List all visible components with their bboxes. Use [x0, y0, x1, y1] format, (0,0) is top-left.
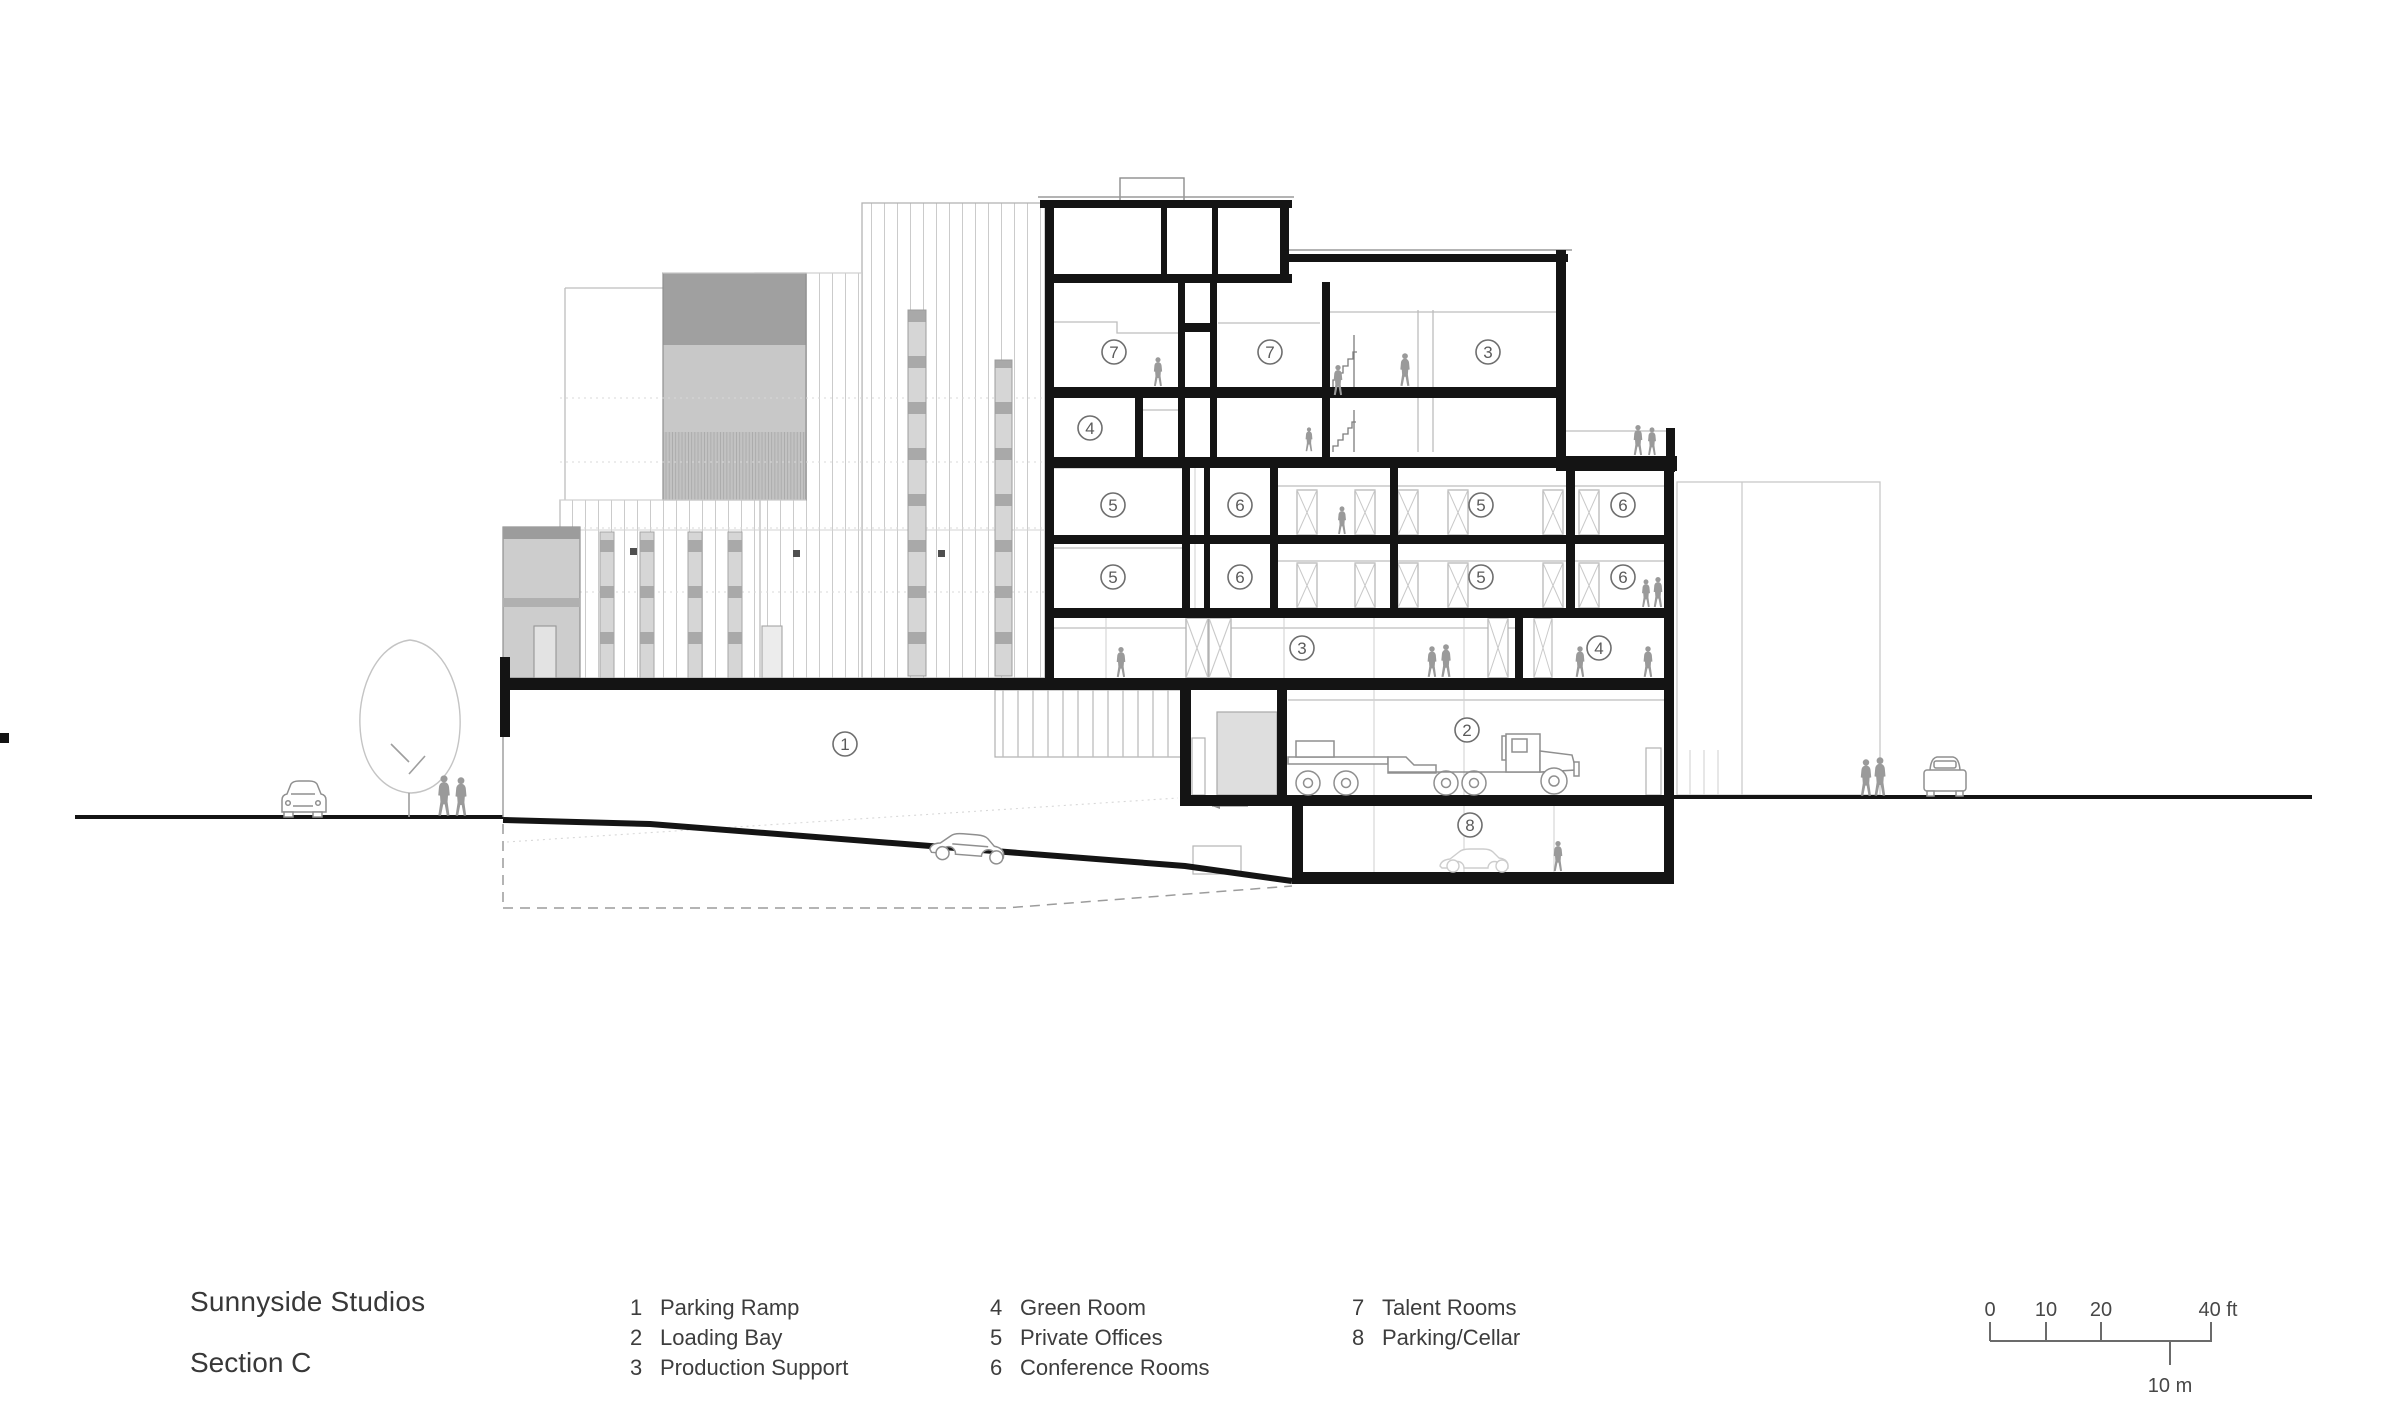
room-marker-7: 7 [1258, 340, 1282, 364]
room-marker-5: 5 [1101, 565, 1125, 589]
svg-text:6: 6 [1618, 568, 1627, 587]
svg-text:1: 1 [840, 735, 849, 754]
legend-item: 6Conference Rooms [990, 1353, 1210, 1383]
room-marker-6: 6 [1611, 493, 1635, 517]
car-in-cellar [1440, 849, 1508, 872]
svg-text:3: 3 [1483, 343, 1492, 362]
svg-text:5: 5 [1108, 496, 1117, 515]
legend-column-3: 7Talent Rooms 8Parking/Cellar [1352, 1293, 1520, 1353]
section-drawing: 77345656565634128 0 10 20 40 ft 10 m [0, 0, 2400, 1425]
sheet-title: Section C [190, 1347, 425, 1379]
room-marker-4: 4 [1078, 416, 1102, 440]
scale-tick-label: 10 [2035, 1299, 2057, 1321]
room-marker-6: 6 [1228, 493, 1252, 517]
svg-text:6: 6 [1618, 496, 1627, 515]
room-marker-3: 3 [1476, 340, 1500, 364]
scale-tick-label: 0 [1984, 1299, 1995, 1321]
backdrop-elevation-left [503, 203, 1045, 678]
legend-item: 8Parking/Cellar [1352, 1323, 1520, 1353]
car-street-right [1924, 757, 1966, 796]
room-marker-5: 5 [1101, 493, 1125, 517]
room-marker-7: 7 [1102, 340, 1126, 364]
ground [0, 733, 2312, 908]
legend-item: 7Talent Rooms [1352, 1293, 1520, 1323]
truck [1288, 734, 1579, 795]
svg-text:4: 4 [1594, 639, 1603, 658]
svg-text:4: 4 [1085, 419, 1094, 438]
car-on-ramp [929, 831, 1005, 864]
room-marker-4: 4 [1587, 636, 1611, 660]
room-marker-1: 1 [833, 732, 857, 756]
svg-text:6: 6 [1235, 568, 1244, 587]
scale-tick-label: 40 ft [2199, 1299, 2238, 1321]
scale-meter-label: 10 m [2148, 1375, 2192, 1397]
svg-text:7: 7 [1109, 343, 1118, 362]
scale-tick-label: 20 [2090, 1299, 2112, 1321]
legend-column-2: 4Green Room 5Private Offices 6Conference… [990, 1293, 1210, 1383]
room-marker-6: 6 [1228, 565, 1252, 589]
legend-item: 1Parking Ramp [630, 1293, 848, 1323]
svg-text:2: 2 [1462, 721, 1471, 740]
scale-bar: 0 10 20 40 ft 10 m [1984, 1299, 2237, 1397]
svg-text:3: 3 [1297, 639, 1306, 658]
project-title: Sunnyside Studios [190, 1286, 425, 1318]
architectural-sheet: 77345656565634128 0 10 20 40 ft 10 m Sun… [0, 0, 2400, 1425]
room-marker-6: 6 [1611, 565, 1635, 589]
car-street-left [282, 781, 326, 817]
room-marker-8: 8 [1458, 813, 1482, 837]
room-marker-5: 5 [1469, 493, 1493, 517]
legend-column-1: 1Parking Ramp 2Loading Bay 3Production S… [630, 1293, 848, 1383]
svg-text:8: 8 [1465, 816, 1474, 835]
legend-item: 4Green Room [990, 1293, 1210, 1323]
room-marker-5: 5 [1469, 565, 1493, 589]
legend-item: 2Loading Bay [630, 1323, 848, 1353]
room-marker-2: 2 [1455, 718, 1479, 742]
svg-text:7: 7 [1265, 343, 1274, 362]
svg-text:6: 6 [1235, 496, 1244, 515]
title-block: Sunnyside Studios Section C [190, 1286, 425, 1379]
svg-text:5: 5 [1476, 496, 1485, 515]
room-marker-3: 3 [1290, 636, 1314, 660]
backdrop-elevation-right [1677, 482, 1880, 795]
svg-text:5: 5 [1108, 568, 1117, 587]
svg-text:5: 5 [1476, 568, 1485, 587]
legend-item: 5Private Offices [990, 1323, 1210, 1353]
legend-item: 3Production Support [630, 1353, 848, 1383]
